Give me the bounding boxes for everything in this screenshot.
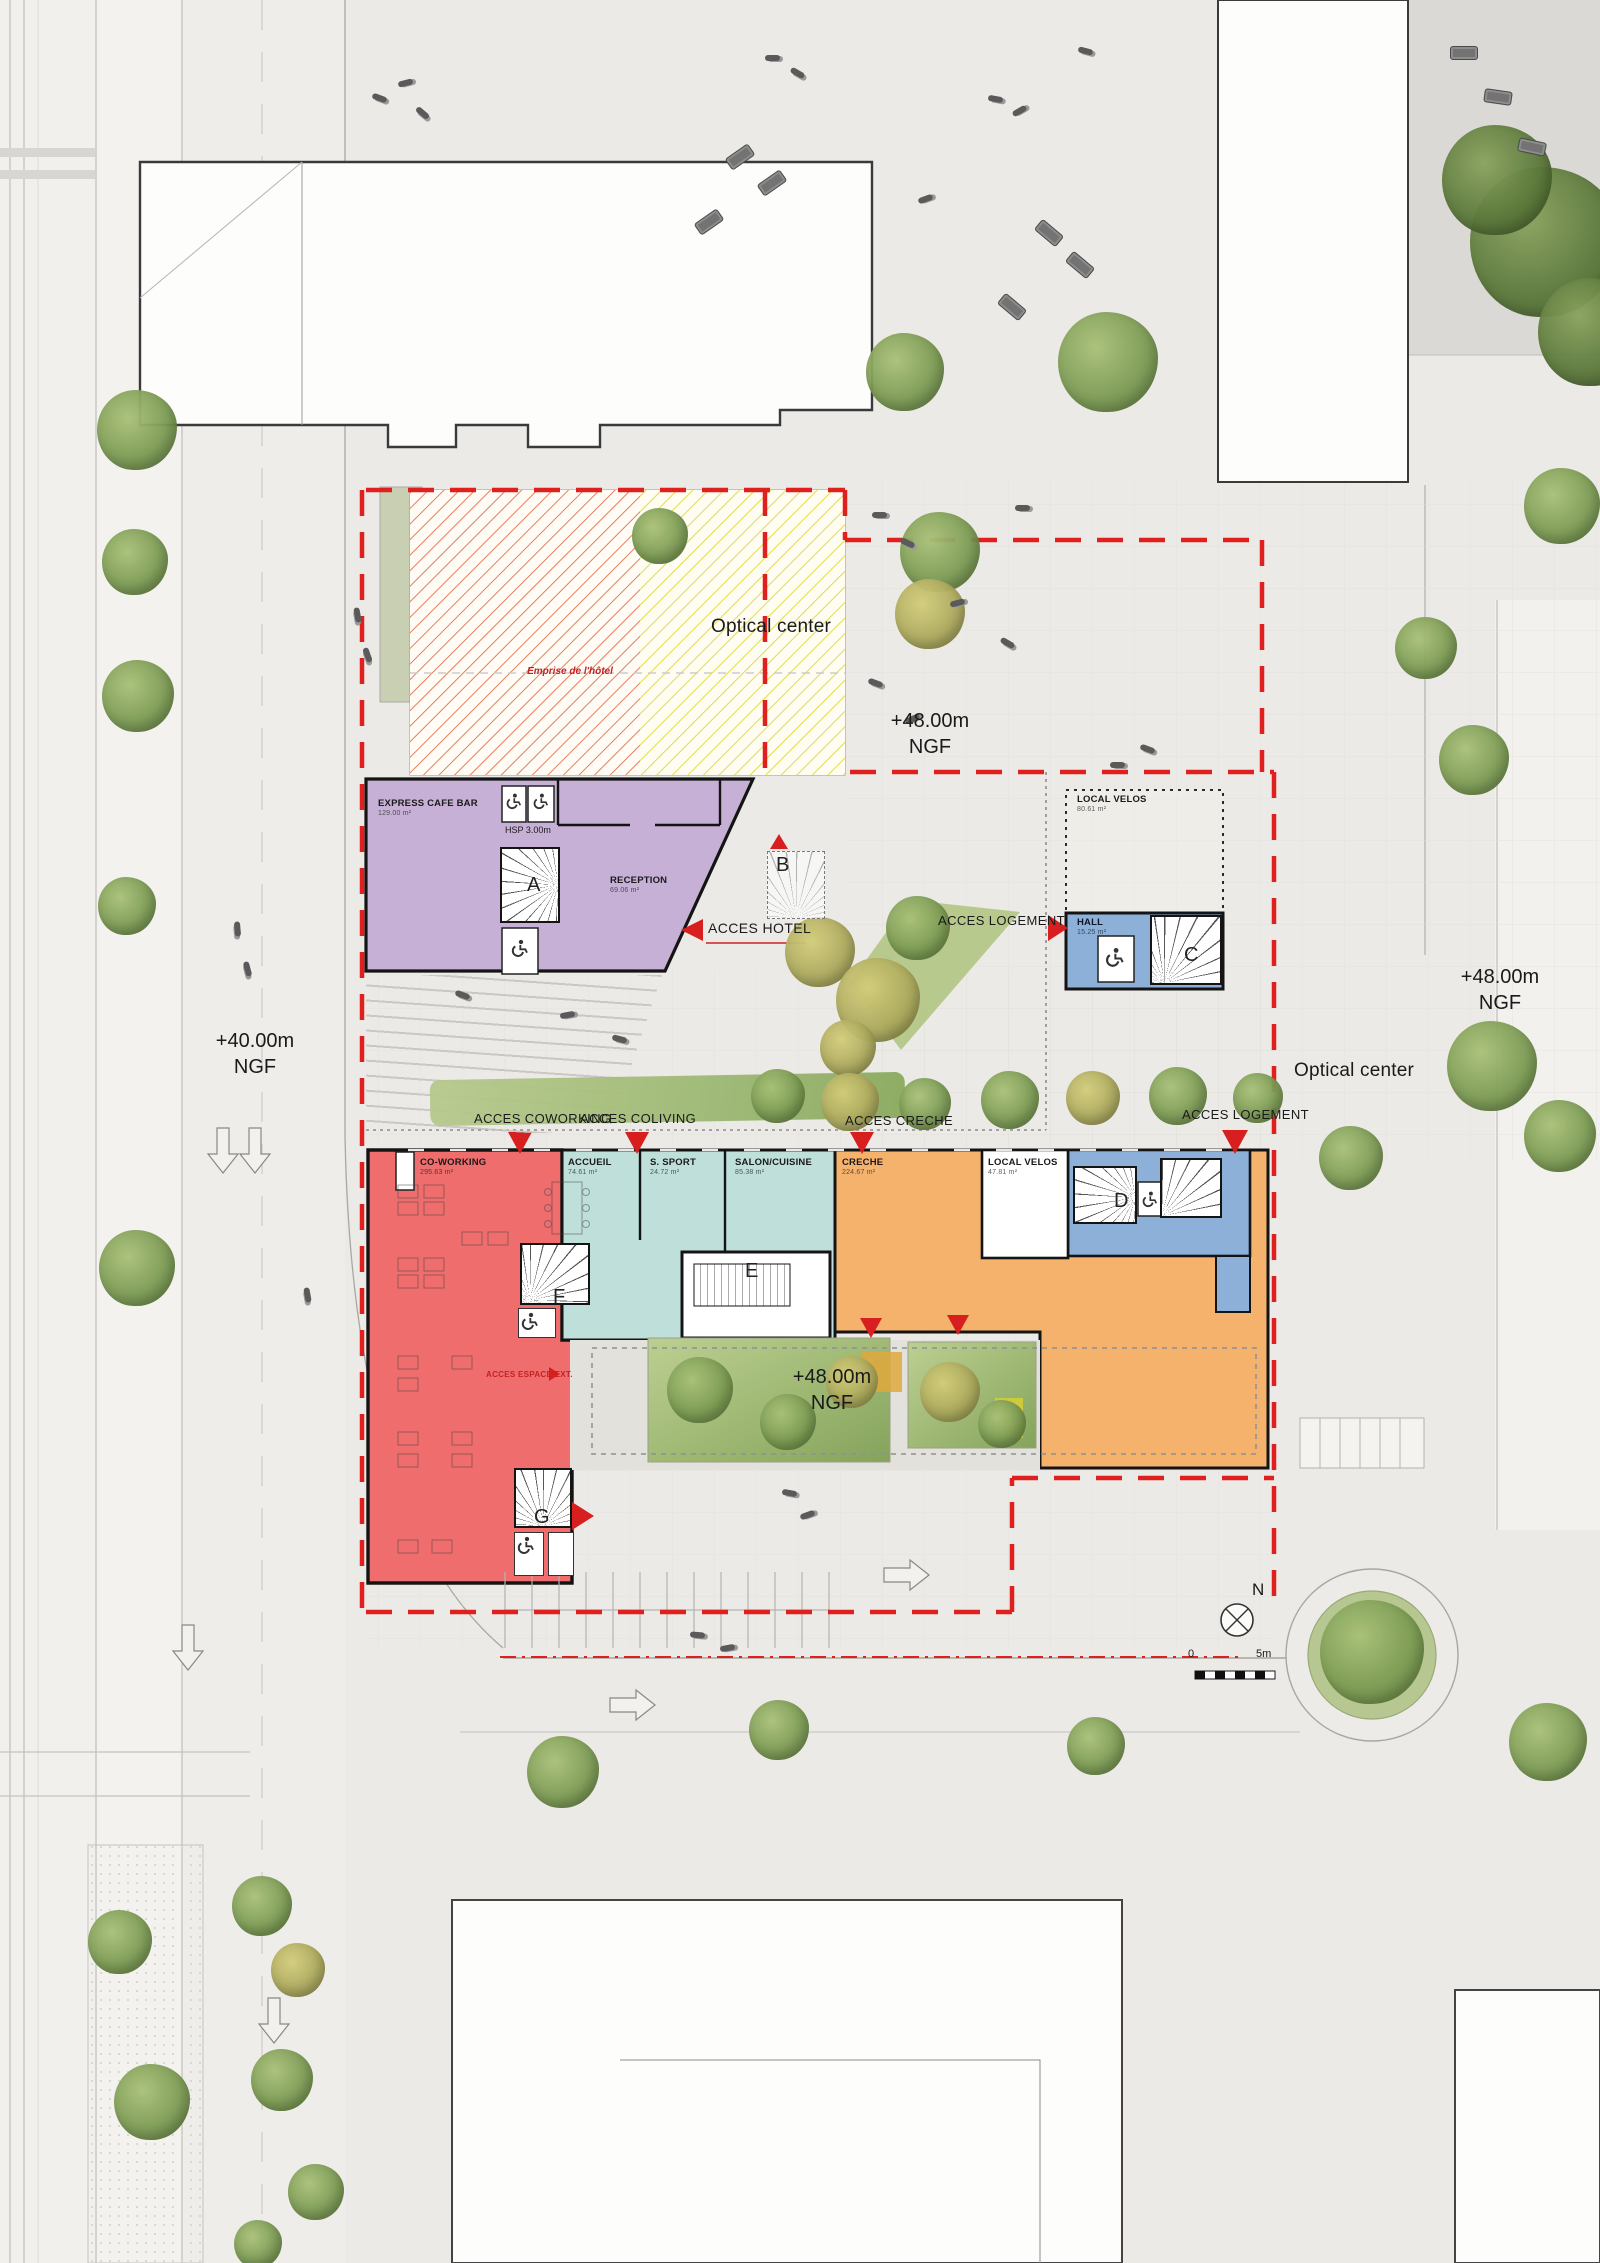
building-southeast [1455, 1990, 1600, 2263]
person-figure [690, 1631, 705, 1638]
room-name: CRECHE [842, 1157, 883, 1168]
access-coliving-label: ACCES COLIVING [580, 1112, 696, 1127]
wc-room-g [514, 1532, 544, 1576]
person-figure [1015, 505, 1030, 511]
level-line1: +48.00m [855, 708, 1005, 734]
access-logement-mid-label: ACCES LOGEMENT [938, 914, 1065, 929]
level-line1: +48.00m [1425, 964, 1575, 990]
tram-platform [88, 1845, 203, 2263]
room-label-velos-lower: LOCAL VELOS 47.81 m² [988, 1158, 1058, 1177]
room-label-coworking: CO-WORKING 295.63 m² [420, 1158, 486, 1177]
access-creche-label: ACCES CRECHE [845, 1114, 953, 1129]
stair-g-label: G [534, 1506, 550, 1529]
stair-f-label: F [553, 1286, 565, 1309]
building-north [140, 162, 872, 447]
room-label-salon: SALON/CUISINE 85.38 m² [735, 1158, 812, 1177]
room-label-velos-upper: LOCAL VELOS 80.61 m² [1077, 795, 1147, 814]
site-plan-canvas: Optical center Emprise de l'hôtel +48.00… [0, 0, 1600, 2263]
room-area: 24.72 m² [650, 1169, 696, 1177]
room-name: EXPRESS CAFE BAR [378, 798, 478, 809]
room-area: 85.38 m² [735, 1169, 812, 1177]
emprise-hotel-label: Emprise de l'hôtel [490, 666, 650, 678]
room-area: 295.63 m² [420, 1169, 486, 1177]
room-name: RECEPTION [610, 875, 667, 886]
room-label-sport: S. SPORT 24.72 m² [650, 1158, 696, 1177]
level-line2: NGF [1425, 990, 1575, 1016]
optical-center-top-label: Optical center [671, 616, 871, 638]
stair-e-label: E [745, 1260, 758, 1283]
room-label-accueil: ACCUEIL 74.61 m² [568, 1158, 612, 1177]
scale-zero-label: 0 [1188, 1648, 1194, 1661]
room-area: 69.06 m² [610, 887, 667, 895]
tree [234, 2220, 282, 2263]
room-label-creche: CRECHE 224.67 m² [842, 1158, 883, 1177]
optical-center-right-label: Optical center [1254, 1060, 1454, 1082]
room-label-hall: HALL 15.25 m² [1077, 918, 1106, 937]
stair-d-label: D [1114, 1190, 1128, 1213]
person-figure [234, 921, 241, 936]
room-area: 74.61 m² [568, 1169, 612, 1177]
stair-a-label: A [527, 874, 540, 897]
level-40-left-label: +40.00m NGF [175, 1028, 335, 1080]
person-figure [872, 512, 887, 518]
room-area: 80.61 m² [1077, 806, 1147, 814]
level-48-top-label: +48.00m NGF [855, 708, 1005, 760]
level-line2: NGF [757, 1390, 907, 1416]
level-line1: +40.00m [175, 1028, 335, 1054]
room-area: 129.00 m² [378, 810, 478, 818]
level-line2: NGF [175, 1054, 335, 1080]
room-name: S. SPORT [650, 1157, 696, 1168]
stair-d2 [1160, 1158, 1222, 1218]
level-48-right-label: +48.00m NGF [1425, 964, 1575, 1016]
room-label-reception: RECEPTION 69.06 m² [610, 876, 667, 895]
store-room-g [548, 1532, 574, 1576]
room-name: SALON/CUISINE [735, 1157, 812, 1168]
level-48-courtyard-label: +48.00m NGF [757, 1364, 907, 1416]
person-figure [765, 55, 780, 61]
stair-c-label: C [1184, 944, 1198, 967]
room-label-cafe: EXPRESS CAFE BAR 129.00 m² [378, 799, 478, 818]
room-name: CO-WORKING [420, 1157, 486, 1168]
room-name: HALL [1077, 917, 1103, 928]
compass [1221, 1604, 1253, 1636]
building-northeast [1218, 0, 1408, 482]
north-label: N [1252, 1580, 1264, 1600]
access-hotel-label: ACCES HOTEL [708, 920, 811, 936]
room-area: 47.81 m² [988, 1169, 1058, 1177]
stair-b-label: B [776, 854, 789, 877]
hsp-label: HSP 3.00m [505, 825, 551, 835]
wc-room-f [518, 1308, 556, 1338]
building-south [452, 1900, 1122, 2263]
room-area: 15.25 m² [1077, 929, 1106, 937]
room-name: LOCAL VELOS [1077, 794, 1147, 805]
room-name: ACCUEIL [568, 1157, 612, 1168]
scale-bar [1195, 1671, 1275, 1679]
person-figure [1110, 762, 1125, 768]
access-logement-low-label: ACCES LOGEMENT [1182, 1108, 1309, 1123]
car-figure [1450, 46, 1478, 60]
level-line2: NGF [855, 734, 1005, 760]
access-espace-ext-label: ACCES ESPACE EXT. [486, 1370, 573, 1379]
level-line1: +48.00m [757, 1364, 907, 1390]
room-area: 224.67 m² [842, 1169, 883, 1177]
scale-five-label: 5m [1256, 1648, 1271, 1661]
room-name: LOCAL VELOS [988, 1157, 1058, 1168]
